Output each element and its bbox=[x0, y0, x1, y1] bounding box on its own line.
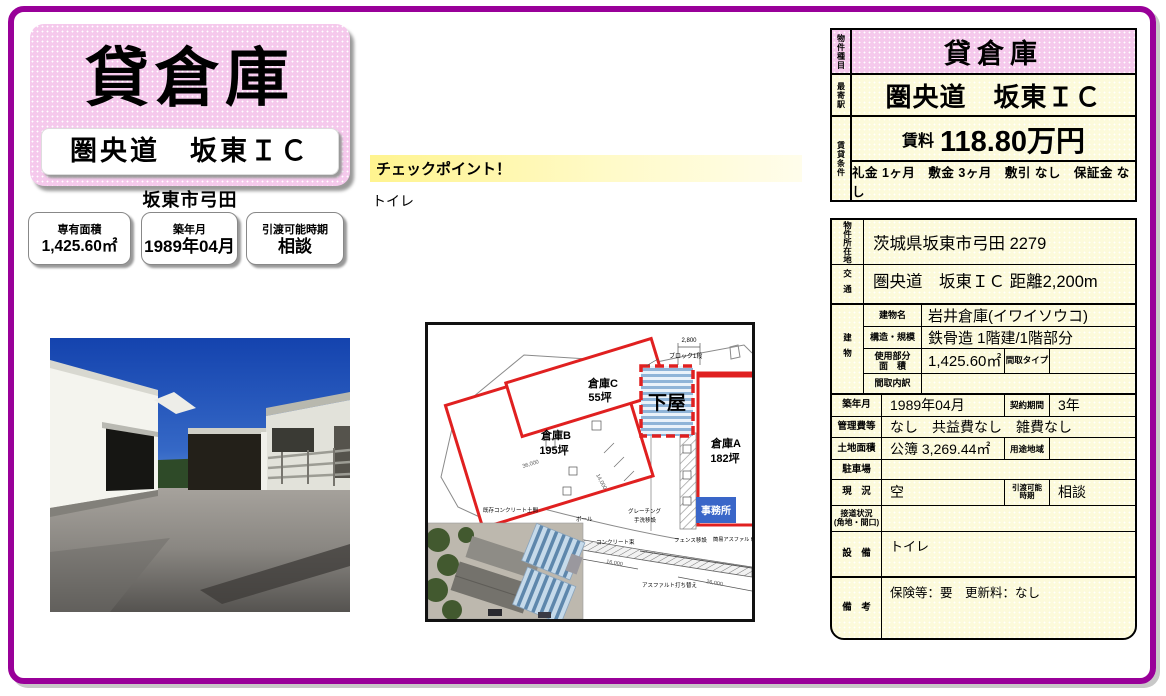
checkpoint-note: トイレ bbox=[370, 182, 802, 211]
mgmt-value: なし 共益費なし 雑費なし bbox=[882, 417, 1135, 438]
structure-label: 構造・規模 bbox=[864, 327, 922, 348]
plan-label-pole: ポール bbox=[576, 516, 593, 523]
mgmt-label: 管理費等 bbox=[832, 417, 882, 438]
plan-geya-label: 下屋 bbox=[648, 392, 686, 414]
aerial-inset-photo bbox=[428, 523, 592, 619]
building-name-label: 建物名 bbox=[864, 305, 922, 326]
info-box-area: 専有面積 1,425.60㎡ bbox=[28, 212, 131, 265]
plan-label-grating: グレーチング bbox=[628, 507, 662, 515]
plan-warehouse-b-label: 倉庫B bbox=[540, 428, 571, 442]
contract-label: 契約期間 bbox=[1005, 395, 1050, 416]
madori-type-label: 間取タイプ bbox=[1005, 349, 1050, 373]
detail-address-value: 茨城県坂東市弓田 2279 bbox=[864, 220, 1135, 264]
site-plan: 倉庫C 55坪 倉庫B 195坪 下屋 倉庫A 182坪 事務所 ブロック1段 … bbox=[425, 322, 755, 622]
built-label: 築年月 bbox=[832, 395, 882, 416]
status-value: 空 bbox=[882, 480, 1005, 505]
land-value: 公簿 3,269.44㎡ bbox=[882, 438, 1005, 459]
road-value bbox=[882, 506, 1135, 532]
info-box-built: 築年月 1989年04月 bbox=[141, 212, 238, 265]
property-photo bbox=[50, 338, 350, 612]
used-area-label: 使用部分 bbox=[874, 351, 910, 361]
info-box-label: 築年月 bbox=[173, 221, 206, 237]
equip-label: 設 備 bbox=[832, 532, 882, 575]
summary-terms-header: 賃貸条件 bbox=[832, 117, 852, 200]
site-plan-drawing: 倉庫C 55坪 倉庫B 195坪 下屋 倉庫A 182坪 事務所 ブロック1段 … bbox=[428, 325, 752, 619]
plan-warehouse-c-area: 55坪 bbox=[588, 391, 611, 404]
detail-access-header: 交通 bbox=[832, 265, 864, 303]
parking-value bbox=[882, 460, 1135, 479]
madori-detail-label: 間取内訳 bbox=[864, 374, 922, 393]
parking-label: 駐車場 bbox=[832, 460, 882, 479]
info-box-label: 引渡可能時期 bbox=[262, 221, 328, 237]
plan-label-tearai: 手洗移設 bbox=[634, 516, 657, 524]
plan-warehouse-b-area: 195坪 bbox=[539, 444, 568, 457]
info-box-label: 専有面積 bbox=[58, 221, 102, 237]
plan-warehouse-c-label: 倉庫C bbox=[587, 376, 618, 390]
detail-building-header: 建物 bbox=[832, 305, 864, 393]
remarks-value: 保険等：要 更新料：なし bbox=[882, 578, 1135, 638]
handover-value: 相談 bbox=[1050, 480, 1135, 505]
plan-label-simple-asphalt: 簡易アスファルト舗装 bbox=[713, 535, 752, 543]
rent-value: 118.80万円 bbox=[940, 118, 1085, 160]
summary-station-value: 圏央道 坂東ＩＣ bbox=[852, 75, 1135, 115]
info-box-value: 相談 bbox=[278, 237, 312, 257]
detail-table: 物件所在地 茨城県坂東市弓田 2279 交通 圏央道 坂東ＩＣ 距離2,200m… bbox=[830, 218, 1137, 640]
remarks-label: 備 考 bbox=[832, 578, 882, 638]
plan-dim-16000: 16,000 bbox=[606, 559, 624, 568]
summary-table: 物件種目 貸倉庫 最寄駅 圏央道 坂東ＩＣ 賃貸条件 賃料 118.80万円 礼… bbox=[830, 28, 1137, 202]
plan-label-asphalt: アスファルト打ち替え bbox=[642, 581, 697, 589]
summary-station-header: 最寄駅 bbox=[832, 75, 852, 115]
status-label: 現 況 bbox=[832, 480, 882, 505]
madori-type-value bbox=[1050, 349, 1135, 373]
info-box-value: 1989年04月 bbox=[144, 237, 235, 257]
page-title: 貸倉庫 bbox=[30, 24, 350, 128]
structure-value: 鉄骨造 1階建/1階部分 bbox=[922, 327, 1135, 348]
info-box-value: 1,425.60㎡ bbox=[42, 237, 118, 257]
rent-label: 賃料 bbox=[902, 127, 934, 151]
summary-type-value: 貸倉庫 bbox=[852, 30, 1135, 73]
hero-title-box: 貸倉庫 圏央道 坂東ＩＣ bbox=[30, 24, 350, 186]
plan-warehouse-a-label: 倉庫A bbox=[710, 436, 741, 450]
plan-warehouse-a-area: 182坪 bbox=[710, 452, 739, 465]
info-box-handover: 引渡可能時期 相談 bbox=[246, 212, 344, 265]
plan-dim-26000: 26,000 bbox=[706, 579, 724, 588]
zoning-value bbox=[1050, 438, 1135, 459]
plan-label-concrete: コンクリート束 bbox=[596, 539, 635, 546]
plan-label-fence: フェンス移設 bbox=[674, 536, 707, 544]
detail-address-header: 物件所在地 bbox=[832, 220, 864, 264]
built-value: 1989年04月 bbox=[882, 395, 1005, 416]
checkpoint-section: チェックポイント！ トイレ bbox=[370, 155, 802, 211]
equip-value: トイレ bbox=[882, 532, 1135, 575]
plan-label-existing-concrete: 既存コンクリート土間 bbox=[483, 506, 539, 514]
checkpoint-heading: チェックポイント！ bbox=[370, 155, 802, 182]
used-area-value: 1,425.60㎡ bbox=[922, 349, 1005, 373]
plan-dim-2800: 2,800 bbox=[681, 338, 697, 344]
plan-block-label: ブロック1段 bbox=[669, 352, 702, 360]
terms-detail: 礼金 1ヶ月 敷金 3ヶ月 敷引 なし 保証金 なし bbox=[852, 162, 1135, 200]
summary-type-header: 物件種目 bbox=[832, 30, 852, 73]
property-photo-art bbox=[50, 338, 350, 612]
plan-office-label: 事務所 bbox=[701, 504, 731, 517]
detail-access-value: 圏央道 坂東ＩＣ 距離2,200m bbox=[864, 265, 1135, 303]
contract-value: 3年 bbox=[1050, 395, 1135, 416]
hero-city: 坂東市弓田 bbox=[30, 186, 350, 212]
zoning-label: 用途地域 bbox=[1005, 438, 1050, 459]
hero-subtitle: 圏央道 坂東ＩＣ bbox=[41, 128, 339, 175]
madori-detail-value bbox=[922, 374, 1135, 393]
building-name-value: 岩井倉庫(イワイソウコ) bbox=[922, 305, 1135, 326]
land-label: 土地面積 bbox=[832, 438, 882, 459]
